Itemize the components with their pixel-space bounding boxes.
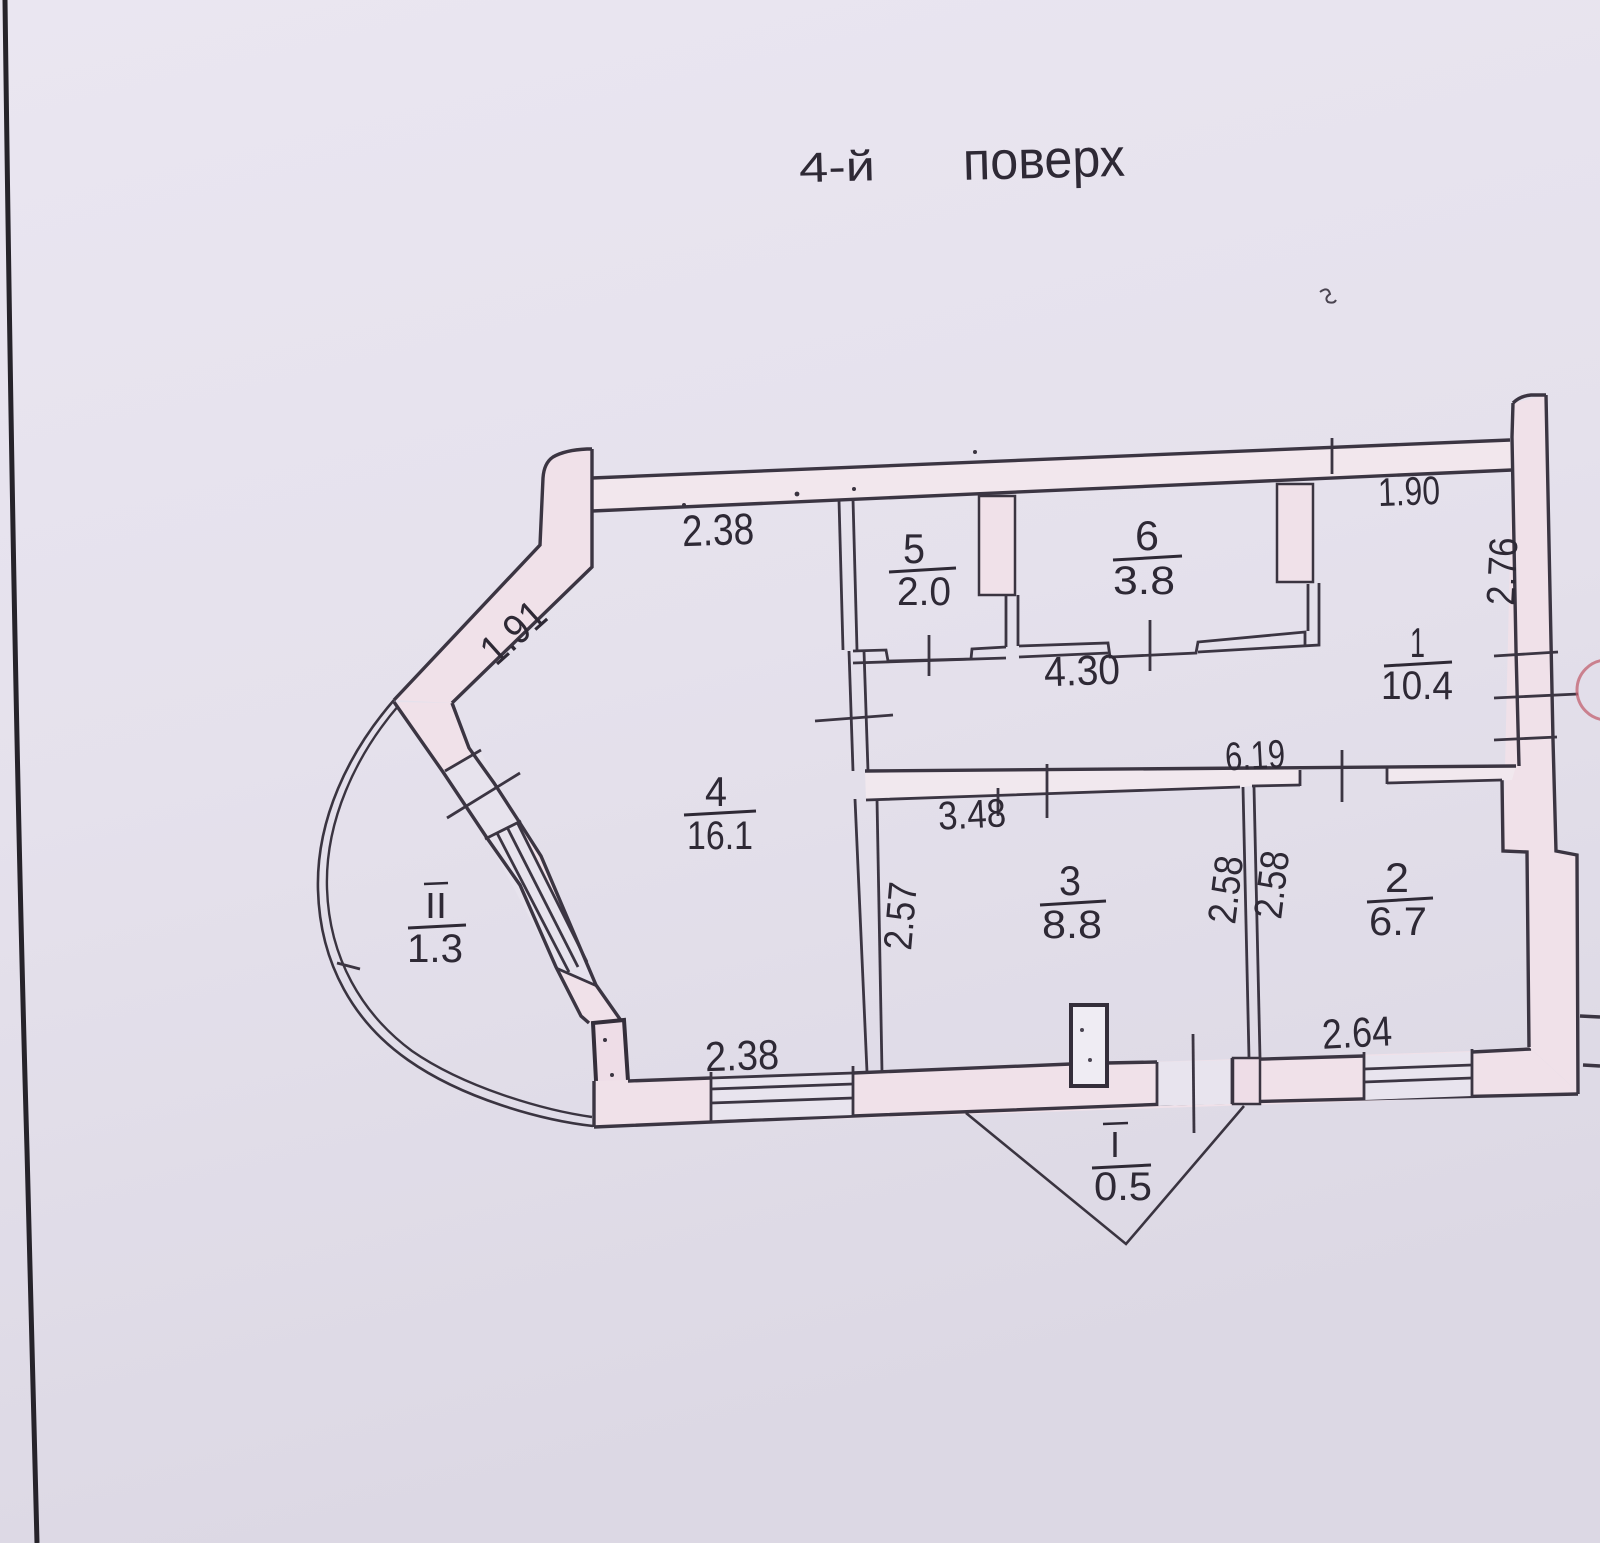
svg-text:2.58: 2.58	[1200, 853, 1252, 926]
svg-text:4.30: 4.30	[1043, 646, 1121, 696]
svg-text:II: II	[425, 885, 447, 926]
svg-text:1.3: 1.3	[407, 927, 463, 971]
svg-text:5: 5	[903, 525, 925, 572]
svg-text:6: 6	[1135, 512, 1159, 559]
svg-text:2: 2	[1385, 854, 1409, 901]
svg-text:1: 1	[1410, 619, 1425, 666]
svg-text:4: 4	[705, 768, 727, 815]
svg-text:2.58: 2.58	[1246, 848, 1298, 921]
svg-text:0.5: 0.5	[1094, 1165, 1152, 1209]
svg-text:2.76: 2.76	[1479, 536, 1526, 606]
svg-text:6.7: 6.7	[1369, 900, 1427, 944]
svg-text:6.19: 6.19	[1224, 732, 1286, 779]
svg-text:2.64: 2.64	[1321, 1007, 1393, 1058]
svg-text:3.8: 3.8	[1113, 559, 1175, 603]
svg-text:2.0: 2.0	[897, 570, 951, 614]
svg-text:1.90: 1.90	[1377, 469, 1440, 515]
svg-text:3.48: 3.48	[937, 791, 1007, 838]
svg-text:10.4: 10.4	[1381, 664, 1453, 708]
svg-text:поверх: поверх	[962, 128, 1126, 192]
svg-text:8.8: 8.8	[1042, 903, 1102, 947]
svg-text:2.57: 2.57	[876, 880, 926, 952]
svg-text:2.38: 2.38	[681, 505, 755, 556]
svg-text:2.38: 2.38	[704, 1031, 780, 1081]
svg-text:3: 3	[1059, 857, 1081, 904]
svg-text:4-й: 4-й	[798, 142, 875, 191]
svg-text:16.1: 16.1	[687, 814, 753, 858]
svg-text:I: I	[1110, 1124, 1120, 1165]
